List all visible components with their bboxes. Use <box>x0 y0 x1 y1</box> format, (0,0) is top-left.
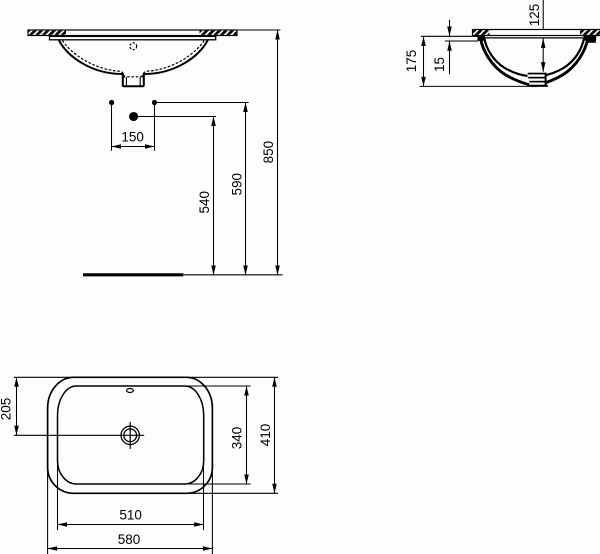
svg-text:540: 540 <box>197 191 212 214</box>
svg-text:175: 175 <box>404 50 419 73</box>
svg-text:205: 205 <box>0 398 14 421</box>
svg-text:580: 580 <box>118 532 141 547</box>
svg-text:590: 590 <box>229 173 244 196</box>
svg-text:510: 510 <box>119 508 142 523</box>
svg-text:125: 125 <box>527 4 542 27</box>
svg-text:340: 340 <box>230 427 245 450</box>
svg-text:850: 850 <box>261 141 276 164</box>
svg-text:15: 15 <box>432 57 447 72</box>
svg-text:150: 150 <box>121 130 144 145</box>
svg-text:410: 410 <box>258 424 273 447</box>
